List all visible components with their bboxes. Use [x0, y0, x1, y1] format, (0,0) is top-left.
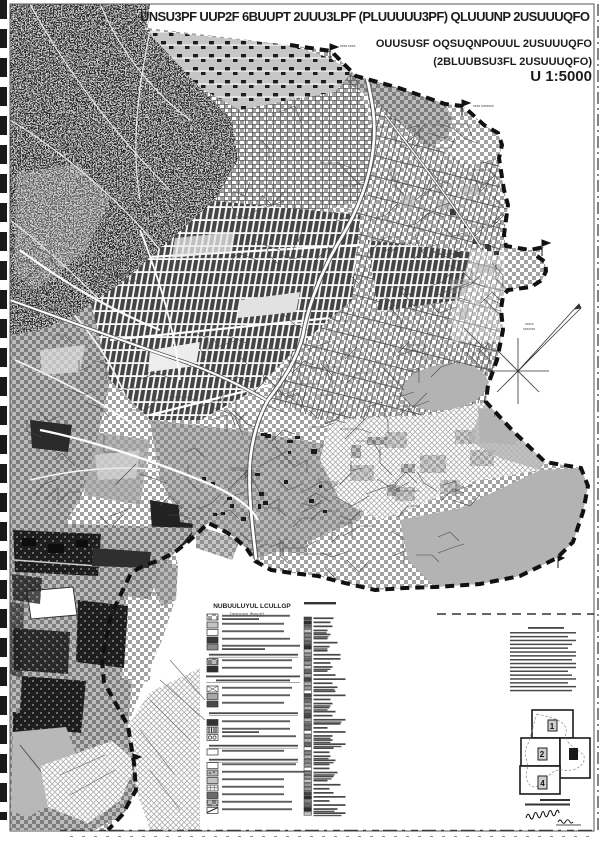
svg-text:xxxxx: xxxxx — [525, 322, 534, 326]
svg-text:4: 4 — [540, 779, 545, 788]
svg-text:2: 2 — [540, 750, 545, 759]
svg-text:OUUSUSF OQSUQNPOUUL 2USUUUQFO: OUUSUSF OQSUQNPOUUL 2USUUUQFO — [376, 38, 593, 50]
svg-text:xxxxxxx: xxxxxxx — [523, 327, 536, 331]
svg-text:xxxx xxxxxxx: xxxx xxxxxxx — [473, 104, 494, 108]
svg-text:xxxx xxxx: xxxx xxxx — [340, 44, 356, 48]
svg-text:UNSU3PF UUP2F 6BUUPT 2UUU3LPF: UNSU3PF UUP2F 6BUUPT 2UUU3LPF (PLUUUUU3P… — [140, 9, 590, 24]
svg-text:U 1:5000: U 1:5000 — [530, 68, 592, 85]
svg-text:(2BLUUBSU3FL 2USUUUQFO): (2BLUUBSU3FL 2USUUUQFO) — [433, 56, 592, 68]
svg-text:NUBUULUYUL LCULLGP: NUBUULUYUL LCULLGP — [213, 603, 291, 610]
svg-text:1: 1 — [550, 722, 555, 731]
